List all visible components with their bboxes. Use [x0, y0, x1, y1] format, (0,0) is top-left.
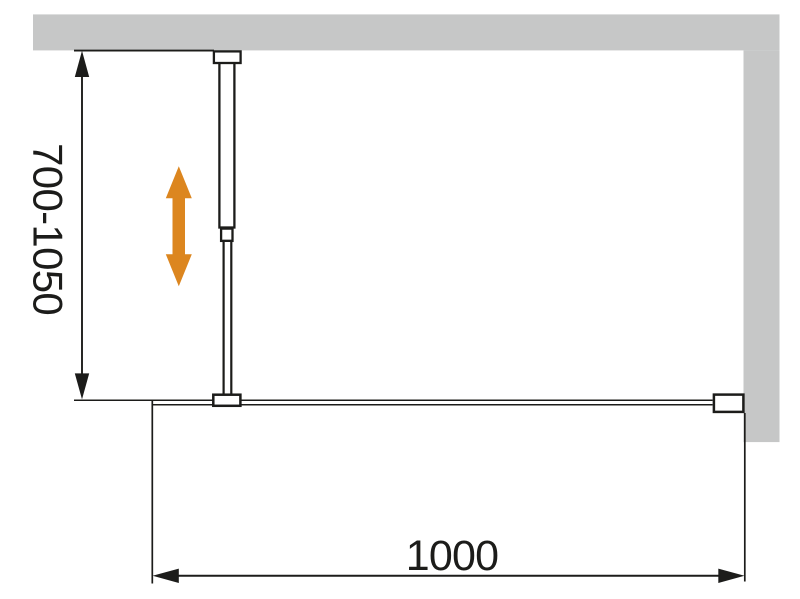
- svg-text:700-1050: 700-1050: [24, 143, 71, 315]
- svg-text:1000: 1000: [406, 532, 498, 580]
